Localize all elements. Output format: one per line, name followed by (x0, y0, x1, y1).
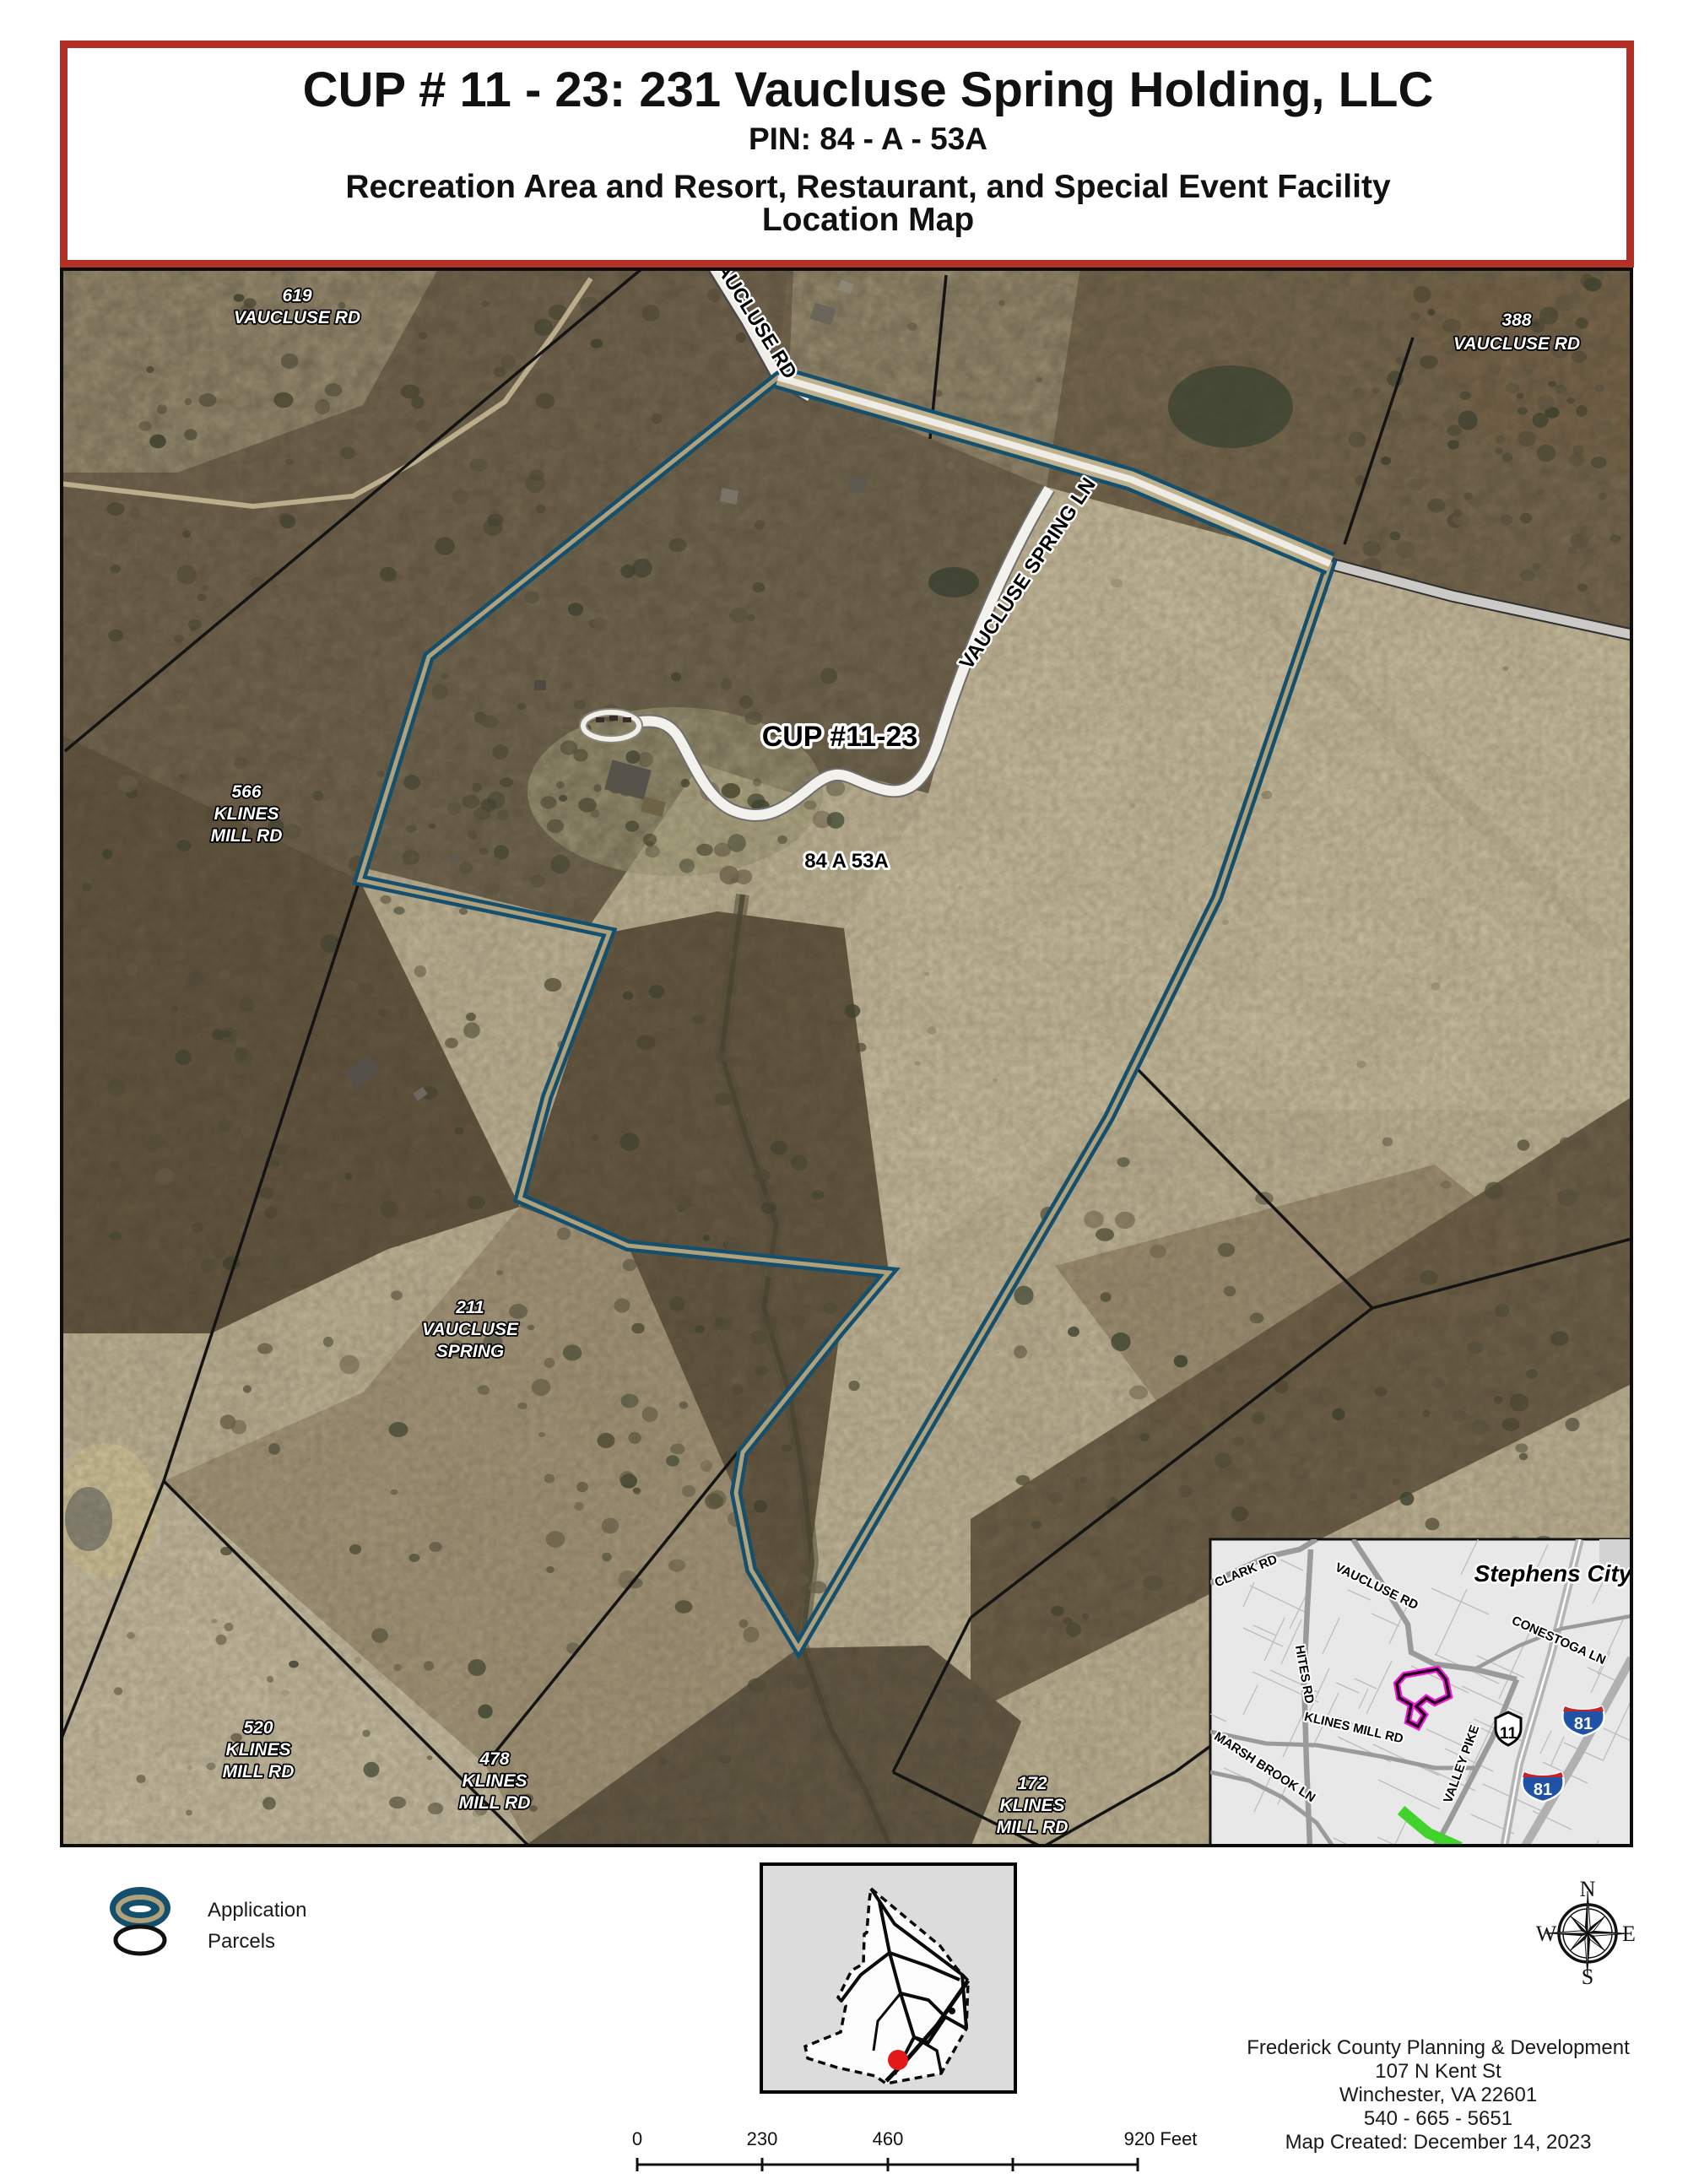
svg-text:Stephens City: Stephens City (1474, 1560, 1633, 1587)
svg-text:230: 230 (747, 2128, 778, 2149)
svg-text:MILL RD: MILL RD (459, 1793, 531, 1813)
svg-text:VAUCLUSE: VAUCLUSE (422, 1320, 519, 1339)
svg-text:540 - 665 - 5651: 540 - 665 - 5651 (1364, 2107, 1512, 2130)
svg-text:N: N (1580, 1877, 1596, 1901)
svg-text:Winchester, VA 22601: Winchester, VA 22601 (1339, 2084, 1537, 2106)
svg-text:107 N Kent St: 107 N Kent St (1375, 2060, 1501, 2083)
svg-text:MILL RD: MILL RD (997, 1818, 1069, 1837)
svg-text:Parcels: Parcels (208, 1930, 275, 1953)
svg-text:KLINES: KLINES (462, 1771, 527, 1791)
svg-text:0: 0 (632, 2128, 642, 2149)
svg-text:520: 520 (243, 1718, 273, 1738)
svg-text:VAUCLUSE RD: VAUCLUSE RD (234, 308, 360, 327)
svg-text:211: 211 (455, 1298, 484, 1317)
svg-text:81: 81 (1534, 1781, 1552, 1799)
svg-text:MILL RD: MILL RD (211, 826, 283, 846)
svg-text:460: 460 (873, 2128, 904, 2149)
svg-text:KLINES: KLINES (214, 804, 279, 824)
svg-text:CUP #11-23: CUP #11-23 (762, 721, 918, 753)
svg-text:478: 478 (479, 1749, 509, 1769)
svg-text:Map Created: December 14, 2023: Map Created: December 14, 2023 (1285, 2131, 1592, 2154)
svg-text:S: S (1582, 1965, 1593, 1989)
svg-text:Frederick County Planning & De: Frederick County Planning & Development (1247, 2036, 1630, 2059)
svg-text:W: W (1536, 1922, 1557, 1946)
svg-text:MILL RD: MILL RD (223, 1762, 295, 1781)
svg-text:11: 11 (1500, 1725, 1518, 1743)
svg-text:KLINES: KLINES (999, 1796, 1064, 1815)
svg-text:920 Feet: 920 Feet (1124, 2128, 1198, 2149)
svg-text:566: 566 (231, 782, 261, 802)
svg-text:VAUCLUSE RD: VAUCLUSE RD (1453, 334, 1580, 354)
svg-text:KLINES: KLINES (225, 1740, 290, 1760)
svg-text:619: 619 (282, 286, 311, 305)
svg-text:172: 172 (1017, 1774, 1047, 1793)
svg-text:81: 81 (1574, 1715, 1593, 1733)
svg-text:84 A 53A: 84 A 53A (804, 850, 889, 873)
svg-text:Application: Application (208, 1899, 306, 1922)
svg-text:SPRING: SPRING (436, 1342, 505, 1361)
svg-text:E: E (1622, 1922, 1636, 1946)
svg-text:388: 388 (1501, 311, 1531, 330)
